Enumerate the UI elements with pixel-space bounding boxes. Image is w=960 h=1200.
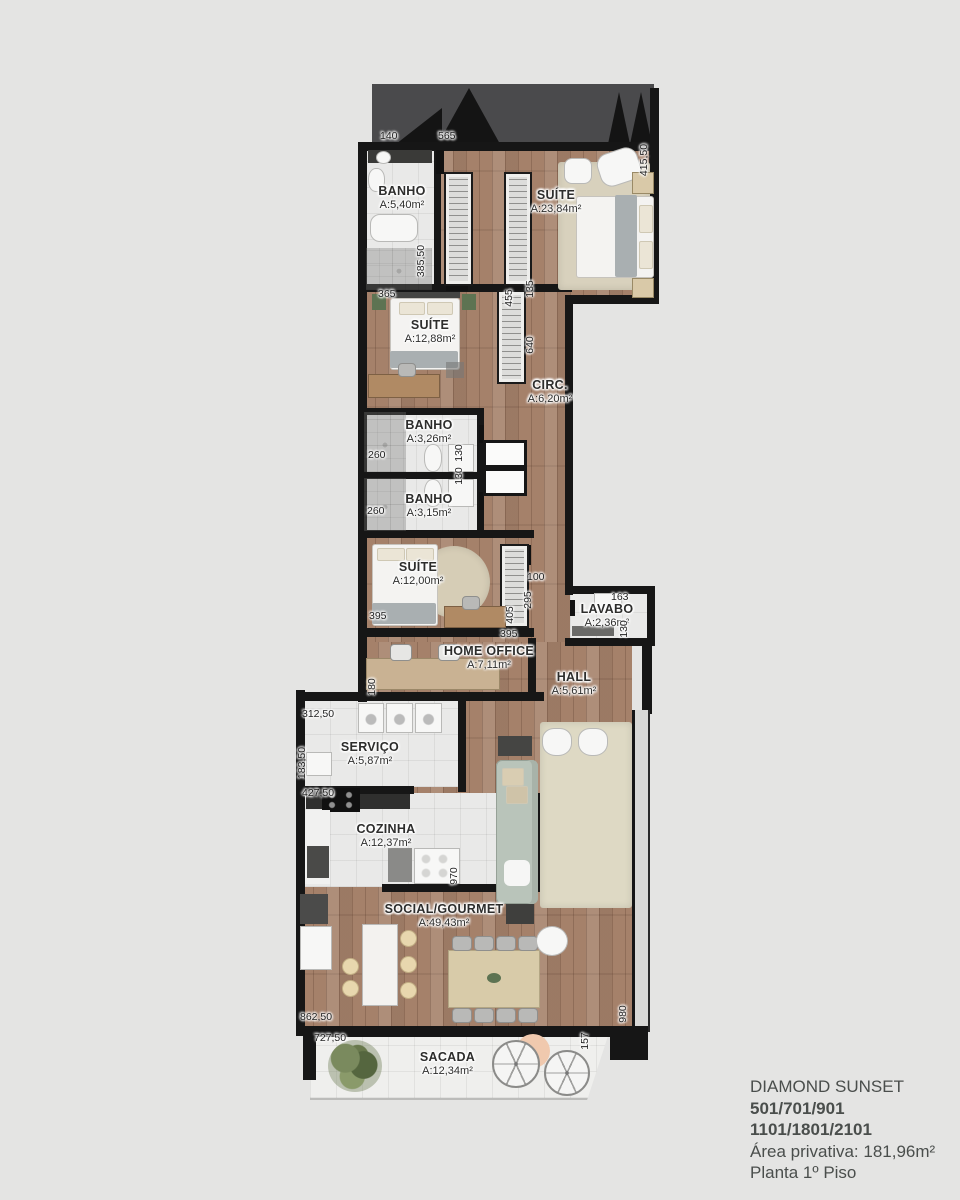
dim-label: 455 bbox=[503, 276, 519, 320]
kitchen-sink bbox=[307, 846, 329, 878]
armchair bbox=[578, 728, 608, 756]
floorplan-canvas: BANHOA:5,40m² SUÍTEA:23,84m² SUÍTEA:12,8… bbox=[0, 0, 960, 1200]
room-label-circ: CIRC.A:6,20m² bbox=[515, 378, 585, 405]
window-sill-strip bbox=[632, 710, 650, 1032]
dim-label: 260 bbox=[367, 505, 385, 517]
room-label-lavabo: LAVABOA:2,36m² bbox=[566, 602, 648, 629]
dining-table bbox=[448, 950, 540, 1008]
dim-label: 180 bbox=[366, 665, 382, 709]
plan-units-line1: 501/701/901 bbox=[750, 1098, 935, 1120]
dim-label: 565 bbox=[438, 130, 456, 142]
plan-title: DIAMOND SUNSET bbox=[750, 1076, 935, 1098]
plant bbox=[328, 1040, 382, 1092]
dining-chair bbox=[452, 936, 472, 951]
wall bbox=[642, 638, 652, 714]
nightstand bbox=[632, 278, 654, 298]
side-table bbox=[446, 362, 464, 378]
stool bbox=[400, 930, 417, 947]
plan-units-line2: 1101/1801/2101 bbox=[750, 1119, 935, 1141]
tv-sideboard bbox=[498, 736, 532, 756]
room-label-home-office: HOME OFFICEA:7,11m² bbox=[430, 644, 548, 671]
plan-area-line: Área privativa: 181,96m² bbox=[750, 1141, 935, 1163]
washer bbox=[415, 703, 442, 733]
room-label-servico: SERVIÇOA:5,87m² bbox=[330, 740, 410, 767]
coffee-table bbox=[506, 904, 534, 924]
desk-chair bbox=[390, 644, 412, 661]
oven-column bbox=[300, 894, 328, 924]
stool bbox=[400, 982, 417, 999]
dim-label: 140 bbox=[380, 130, 398, 142]
stool bbox=[342, 958, 359, 975]
dining-chair bbox=[496, 936, 516, 951]
dim-label: 183,50 bbox=[296, 741, 312, 785]
pouf-chair bbox=[536, 926, 568, 956]
dim-label: 135 bbox=[524, 267, 540, 311]
room-label-suite2: SUÍTEA:12,88m² bbox=[390, 318, 470, 345]
room-label-banho1: BANHOA:5,40m² bbox=[366, 184, 438, 211]
wall bbox=[647, 586, 655, 646]
dim-label: 395 bbox=[500, 628, 518, 640]
dim-label: 862,50 bbox=[300, 1011, 332, 1023]
ottoman bbox=[564, 158, 592, 184]
dim-label: 312,50 bbox=[302, 708, 334, 720]
wall bbox=[296, 692, 544, 701]
bench bbox=[483, 440, 527, 468]
door-leaf bbox=[446, 286, 468, 291]
dining-chair bbox=[518, 936, 538, 951]
armchair bbox=[542, 728, 572, 756]
dim-label: 130 bbox=[453, 454, 469, 498]
dim-label: 163 bbox=[611, 591, 629, 603]
stool bbox=[342, 980, 359, 997]
dim-label: 970 bbox=[448, 854, 464, 898]
dim-label: 385,50 bbox=[415, 239, 431, 283]
dim-label: 365 bbox=[378, 288, 396, 300]
plan-info-block: DIAMOND SUNSET 501/701/901 1101/1801/210… bbox=[750, 1076, 935, 1184]
dim-label: 295 bbox=[522, 578, 538, 622]
dim-label: 727,50 bbox=[314, 1032, 346, 1044]
nightstand-plant bbox=[462, 294, 476, 310]
dining-chair bbox=[474, 936, 494, 951]
exterior-void-left bbox=[296, 636, 358, 692]
room-label-hall: HALLA:5,61m² bbox=[540, 670, 608, 697]
dim-label: 427,50 bbox=[302, 787, 334, 799]
fridge bbox=[300, 926, 332, 970]
wall bbox=[358, 530, 534, 538]
plan-floor-line: Planta 1º Piso bbox=[750, 1162, 935, 1184]
dim-label: 640 bbox=[524, 323, 540, 367]
room-label-suite1: SUÍTEA:23,84m² bbox=[520, 188, 592, 215]
dim-label: 415,50 bbox=[638, 138, 654, 182]
washer bbox=[386, 703, 413, 733]
room-label-suite3: SUÍTEA:12,00m² bbox=[378, 560, 458, 587]
cabinet bbox=[388, 848, 412, 882]
room-label-social: SOCIAL/GOURMETA:49,43m² bbox=[378, 902, 510, 929]
dim-label: 980 bbox=[617, 992, 633, 1036]
desk-chair bbox=[398, 363, 416, 377]
dim-label: 260 bbox=[368, 449, 386, 461]
island-counter bbox=[362, 924, 398, 1006]
desk-chair bbox=[462, 596, 480, 610]
bathtub bbox=[370, 214, 418, 242]
sofa bbox=[496, 760, 538, 904]
dim-label: 395 bbox=[369, 610, 387, 622]
wardrobe bbox=[444, 172, 473, 286]
washbasin bbox=[376, 151, 391, 164]
stool bbox=[400, 956, 417, 973]
exterior-void-right bbox=[573, 302, 654, 586]
dim-label: 130 bbox=[618, 607, 634, 651]
dining-chair bbox=[474, 1008, 494, 1023]
lounge-chair bbox=[492, 1040, 540, 1088]
wall bbox=[458, 694, 466, 792]
dim-label: 100 bbox=[527, 571, 545, 583]
dim-label: 157 bbox=[579, 1019, 595, 1063]
room-label-cozinha: COZINHAA:12,37m² bbox=[345, 822, 427, 849]
wall bbox=[565, 295, 573, 595]
dining-chair bbox=[518, 1008, 538, 1023]
room-label-sacada: SACADAA:12,34m² bbox=[405, 1050, 490, 1077]
bench bbox=[483, 468, 527, 496]
toilet bbox=[424, 444, 442, 472]
dining-chair bbox=[496, 1008, 516, 1023]
door-leaf bbox=[436, 150, 444, 174]
dining-chair bbox=[452, 1008, 472, 1023]
desk bbox=[368, 374, 440, 398]
